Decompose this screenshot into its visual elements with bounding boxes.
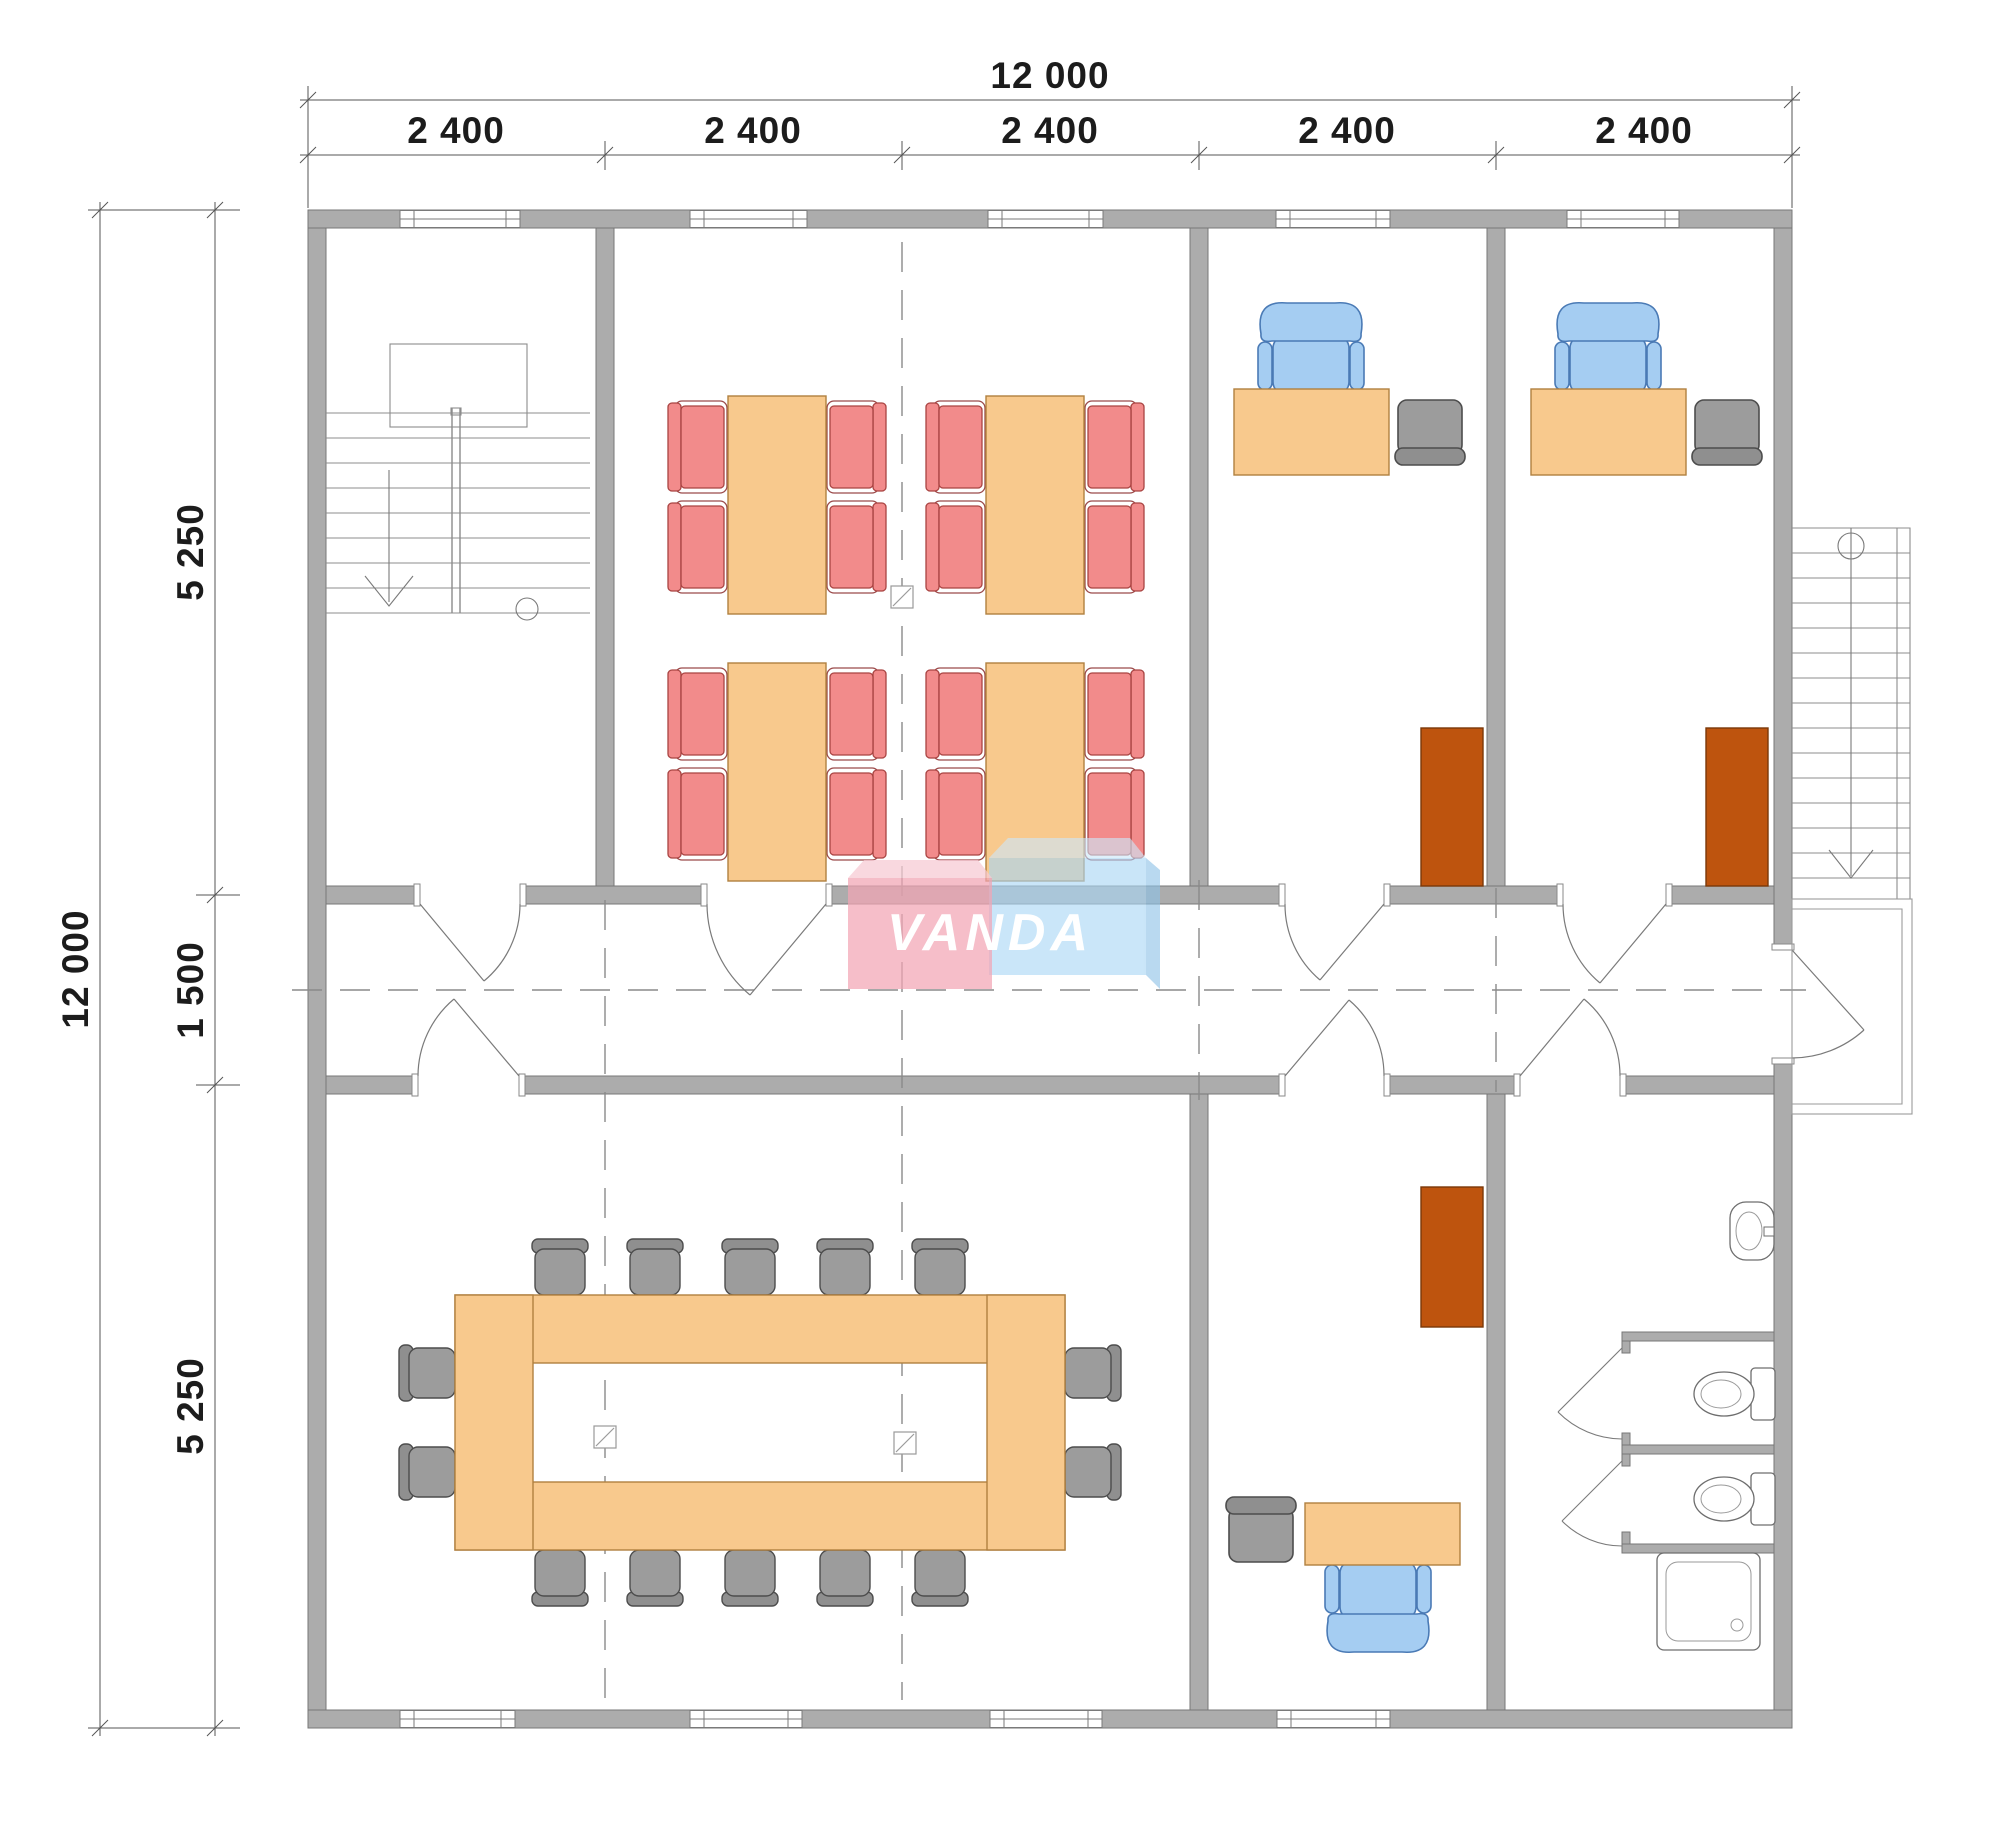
brown-cabinet <box>1706 728 1768 886</box>
window-meeting-3 <box>990 1711 1102 1729</box>
table <box>728 396 826 614</box>
dim-left-seg-2: 1 500 <box>170 941 211 1039</box>
column-marker <box>894 1432 916 1454</box>
window-office2 <box>1567 211 1679 229</box>
exterior-landing <box>1792 899 1912 1114</box>
vanda-watermark: VANDA <box>848 838 1160 989</box>
window-meeting-2 <box>690 1711 802 1729</box>
window-seating-1 <box>690 211 807 229</box>
dim-top-seg-4: 2 400 <box>1298 110 1396 151</box>
wall-office3-bathroom <box>1487 1094 1505 1710</box>
dim-left-overall: 12 000 <box>55 909 96 1028</box>
stair-start-circle <box>516 598 538 620</box>
window-stairwell <box>400 211 520 229</box>
conference-chair <box>532 1550 588 1606</box>
gray-visitor-chair <box>1395 400 1465 465</box>
window-seating-2 <box>988 211 1103 229</box>
door-bathroom <box>1520 999 1620 1076</box>
table <box>986 396 1084 614</box>
column-marker <box>891 586 913 608</box>
window-meeting-1 <box>400 1711 515 1729</box>
door-office1 <box>1285 904 1384 980</box>
wall-stairwell-seating <box>596 228 614 886</box>
conference-chair <box>399 1444 455 1500</box>
conference-chair <box>722 1550 778 1606</box>
red-chair <box>926 501 985 593</box>
wall-exterior-right-upper <box>1774 228 1792 950</box>
window-office1 <box>1276 211 1390 229</box>
toilet <box>1694 1368 1775 1420</box>
conference-chair <box>399 1345 455 1401</box>
office-bottom <box>1226 1187 1483 1652</box>
conference-chair <box>1065 1444 1121 1500</box>
office-top-2 <box>1531 303 1768 886</box>
dim-top-seg-3: 2 400 <box>1001 110 1099 151</box>
brown-cabinet <box>1421 1187 1483 1327</box>
desk <box>1305 1503 1460 1565</box>
conference-chair <box>912 1239 968 1295</box>
door-office2 <box>1563 904 1666 983</box>
floor-plan-canvas: 12 000 2 400 2 400 2 400 2 400 2 400 12 … <box>0 0 2000 1848</box>
red-chair <box>827 768 886 860</box>
exterior-staircase <box>1792 528 1912 1114</box>
conference-chair <box>1065 1345 1121 1401</box>
gray-visitor-chair <box>1226 1497 1296 1562</box>
bathroom-fixtures <box>1558 1202 1775 1650</box>
red-chair <box>668 401 727 493</box>
internal-stairwell <box>326 344 590 620</box>
desk <box>1531 389 1686 475</box>
red-chair <box>1085 401 1144 493</box>
sink <box>1730 1202 1774 1260</box>
red-chair <box>926 768 985 860</box>
dim-top-seg-1: 2 400 <box>407 110 505 151</box>
dim-top-seg-2: 2 400 <box>704 110 802 151</box>
conference-chair <box>627 1239 683 1295</box>
gray-visitor-chair <box>1692 400 1762 465</box>
seating-room-furniture <box>668 396 1144 881</box>
red-chair <box>827 668 886 760</box>
conference-chair <box>627 1550 683 1606</box>
shower-tray <box>1657 1553 1760 1650</box>
wall-exterior-right-lower <box>1774 1058 1792 1710</box>
door-office3 <box>1285 1000 1384 1076</box>
conference-chair <box>532 1239 588 1295</box>
conference-chair <box>817 1239 873 1295</box>
table <box>728 663 826 881</box>
red-chair <box>668 501 727 593</box>
wall-seating-office1 <box>1190 228 1208 886</box>
toilet <box>1694 1473 1775 1525</box>
stall-doors <box>1558 1348 1622 1546</box>
wall-meeting-office3 <box>1190 1094 1208 1710</box>
desk <box>1234 389 1389 475</box>
stall-partition-1 <box>1622 1332 1774 1341</box>
door-stairwell <box>420 904 520 981</box>
stall-partition-2 <box>1622 1445 1774 1454</box>
conference-table <box>455 1295 1065 1550</box>
red-chair <box>1085 501 1144 593</box>
dim-top-overall: 12 000 <box>990 55 1109 96</box>
stall-partition-3 <box>1622 1544 1774 1553</box>
blue-office-chair <box>1258 303 1364 394</box>
window-office3 <box>1277 1711 1390 1729</box>
conference-chair <box>817 1550 873 1606</box>
door-seating-room <box>707 904 826 995</box>
red-chair <box>827 401 886 493</box>
conference-chair <box>722 1239 778 1295</box>
red-chair <box>668 768 727 860</box>
red-chair <box>1085 668 1144 760</box>
wall-exterior-left <box>308 228 326 1710</box>
floor-plan-drawing: 12 000 2 400 2 400 2 400 2 400 2 400 12 … <box>0 0 2000 1848</box>
red-chair <box>827 501 886 593</box>
red-chair <box>668 668 727 760</box>
watermark-text: VANDA <box>887 904 1093 962</box>
red-chair <box>926 401 985 493</box>
red-chair <box>926 668 985 760</box>
office-top-1 <box>1234 303 1483 886</box>
brown-cabinet <box>1421 728 1483 886</box>
blue-office-chair <box>1555 303 1661 394</box>
door-exterior <box>1792 950 1864 1058</box>
door-meeting-room <box>418 999 519 1076</box>
dim-left-seg-3: 5 250 <box>170 1357 211 1455</box>
column-marker <box>594 1426 616 1448</box>
conference-chair <box>912 1550 968 1606</box>
meeting-room-furniture <box>399 1239 1121 1606</box>
dim-top-seg-5: 2 400 <box>1595 110 1693 151</box>
dim-left-seg-1: 5 250 <box>170 503 211 601</box>
blue-office-chair <box>1325 1561 1431 1652</box>
wall-office1-office2 <box>1487 228 1505 886</box>
